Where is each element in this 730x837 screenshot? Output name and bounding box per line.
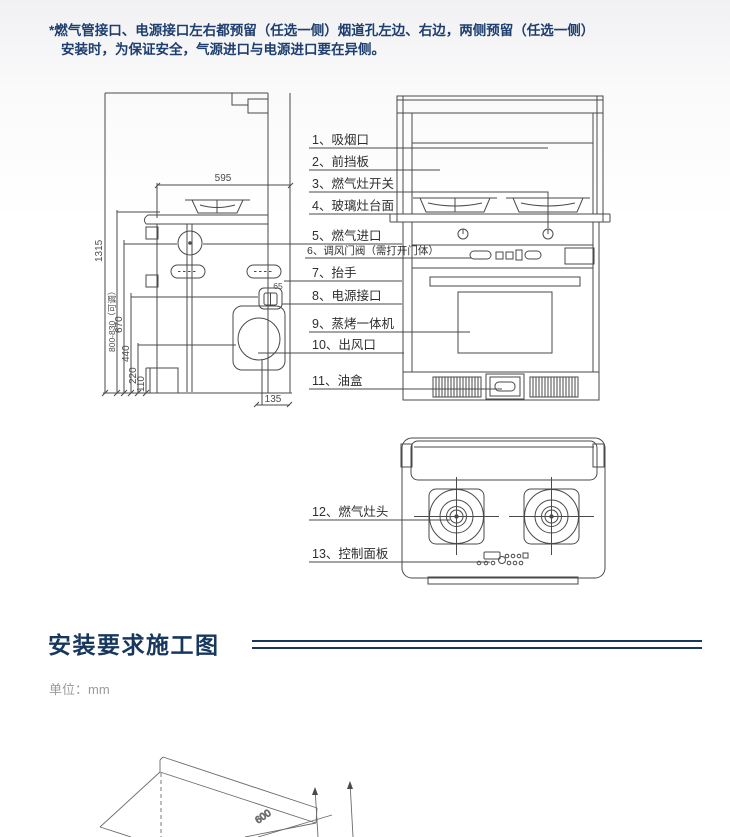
part-label-1: 1、吸烟口 <box>312 133 369 147</box>
part-label-3: 3、燃气灶开关 <box>312 176 394 191</box>
product-diagram-page: *燃气管接口、电源接口左右都预留（任选一侧）烟道孔左边、右边，两侧预留（任选一侧… <box>0 0 730 837</box>
part-label-4: 4、玻璃灶台面 <box>312 198 394 213</box>
part-label-7: 7、抬手 <box>312 266 356 280</box>
technical-drawing: 595 1315 800-830（可调） 670 440 220 110 135… <box>0 0 730 837</box>
part-label-11: 11、油盒 <box>312 373 363 388</box>
dim-top-width: 595 <box>215 173 232 184</box>
dim-power-height: 440 <box>121 345 132 362</box>
unit-label: 单位：mm <box>49 679 110 698</box>
part-label-9: 9、蒸烤一体机 <box>312 316 394 331</box>
dim-pipe-height: 110 <box>136 376 147 392</box>
section-title: 安装要求施工图 <box>48 626 220 660</box>
dim-total-height: 1315 <box>94 239 105 262</box>
part-label-5: 5、燃气进口 <box>312 228 381 243</box>
part-label-2: 2、前挡板 <box>312 154 369 169</box>
part-label-13: 13、控制面板 <box>312 547 389 561</box>
part-label-8: 8、电源接口 <box>312 288 381 303</box>
dim-power-offset: 65 <box>273 281 283 291</box>
part-labels: 1、吸烟口 2、前挡板 3、燃气灶开关 4、玻璃灶台面 5、燃气进口 6、调风门… <box>307 133 439 561</box>
dim-outlet-offset: 135 <box>265 394 282 405</box>
dim-gas-inlet-height: 670 <box>114 316 125 333</box>
section-title-rule <box>252 640 702 649</box>
part-label-12: 12、燃气灶头 <box>312 504 388 519</box>
isometric-install-diagram: 600 <box>100 757 353 837</box>
part-label-6: 6、调风门阀（需打开门体） <box>307 244 439 257</box>
part-label-10: 10、出风口 <box>312 338 376 352</box>
dim-depth: 600 <box>253 808 273 827</box>
